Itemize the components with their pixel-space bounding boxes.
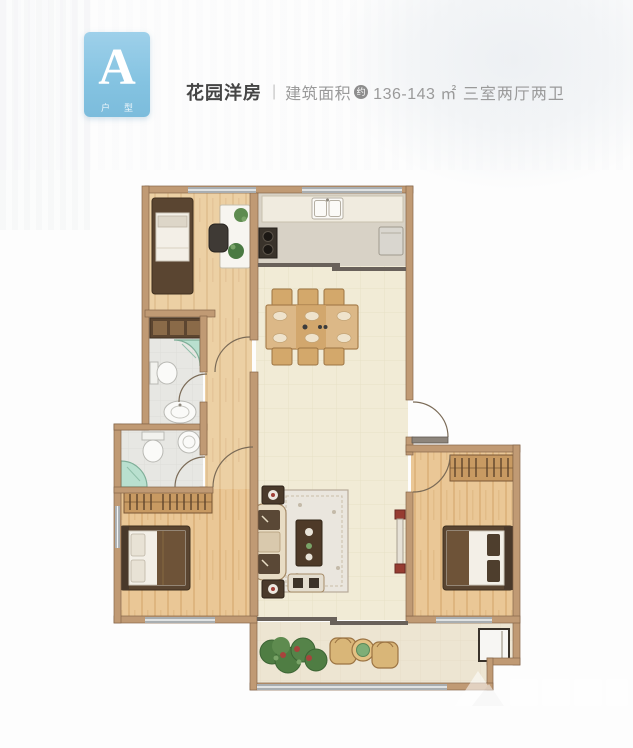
wardrobe-icon — [450, 455, 513, 481]
stove-icon — [259, 228, 277, 258]
dining-table-icon — [266, 305, 358, 349]
storage-cabinet-icon — [150, 318, 205, 338]
coffee-table-icon — [296, 520, 322, 566]
fridge-icon — [379, 227, 403, 255]
watermark — [455, 671, 628, 706]
washing-machine-icon — [479, 629, 509, 661]
entry-door-arc — [413, 402, 448, 437]
window — [145, 617, 215, 623]
floorplan-image — [0, 0, 633, 748]
window — [188, 187, 256, 193]
double-bed-icon — [120, 526, 190, 590]
side-table-icon — [262, 580, 284, 598]
dining-area — [266, 289, 358, 365]
kitchen-sliding-door — [258, 263, 340, 267]
balcony-railing-window — [257, 684, 447, 690]
radiator-icon — [395, 510, 405, 573]
bathroom-sink-icon — [178, 431, 200, 453]
wardrobe-icon — [124, 491, 212, 513]
side-table-icon — [262, 486, 284, 504]
window — [436, 617, 492, 623]
dining-chairs-bottom — [272, 348, 344, 365]
balcony-chair-icon — [372, 642, 398, 668]
page: A 户型 花园洋房 | 建筑面积 约 136-143 ㎡ 三室两厅两卫 — [0, 0, 633, 748]
bathroom-sink-icon — [164, 401, 196, 423]
toilet-icon — [142, 432, 164, 462]
balcony-sliding-door — [330, 621, 408, 625]
toilet-icon — [150, 362, 177, 384]
sink-icon — [312, 198, 343, 219]
balcony-table-icon — [352, 639, 374, 661]
balcony-sliding-door — [257, 617, 337, 621]
double-bed-icon — [443, 526, 513, 590]
tv-bench-icon — [288, 574, 324, 592]
single-bed-icon — [152, 198, 193, 294]
kitchen-sliding-door — [332, 267, 406, 271]
floorplan — [0, 0, 633, 748]
sofa-icon — [254, 504, 286, 580]
plant-icon — [228, 243, 244, 259]
window — [302, 187, 402, 193]
dining-chairs-top — [272, 289, 344, 306]
entry-door-leaf — [412, 437, 448, 443]
window — [115, 506, 120, 548]
